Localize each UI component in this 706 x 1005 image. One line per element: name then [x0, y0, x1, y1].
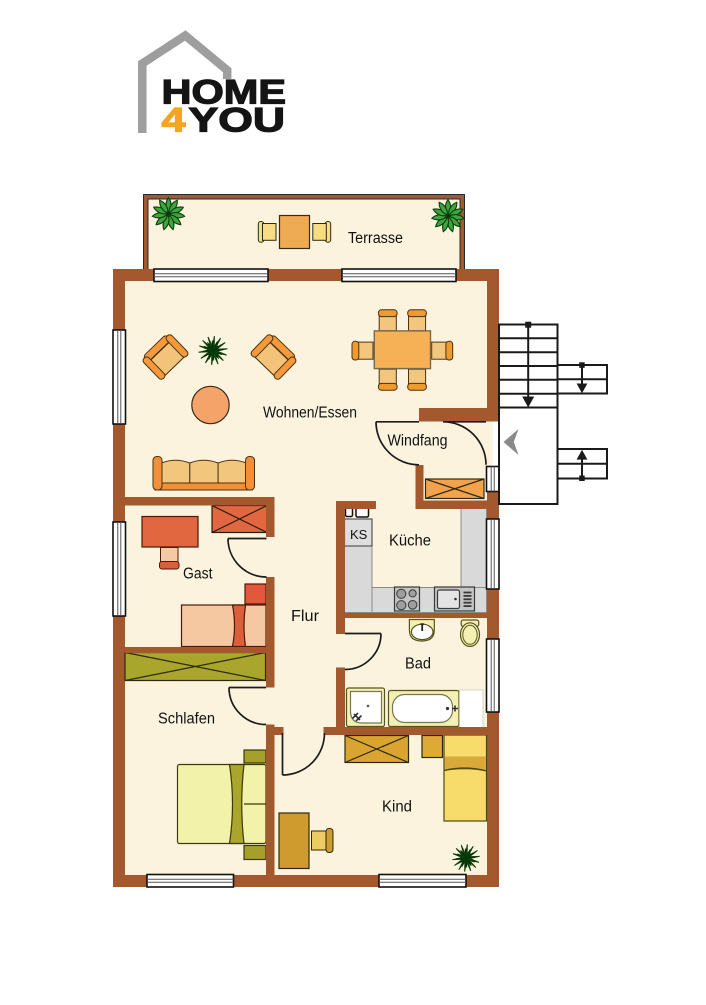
svg-text:4: 4 [162, 102, 186, 140]
svg-text:Bad: Bad [405, 656, 431, 673]
svg-text:YOU: YOU [189, 102, 286, 140]
svg-text:Küche: Küche [389, 533, 431, 550]
svg-text:Gast: Gast [183, 566, 213, 583]
svg-text:Schlafen: Schlafen [158, 711, 215, 728]
svg-text:Flur: Flur [291, 608, 319, 625]
svg-text:KS: KS [350, 527, 368, 542]
svg-text:Wohnen/Essen: Wohnen/Essen [263, 405, 357, 422]
svg-text:Kind: Kind [382, 799, 412, 816]
svg-text:Windfang: Windfang [388, 433, 448, 450]
svg-text:Terrasse: Terrasse [348, 230, 403, 247]
